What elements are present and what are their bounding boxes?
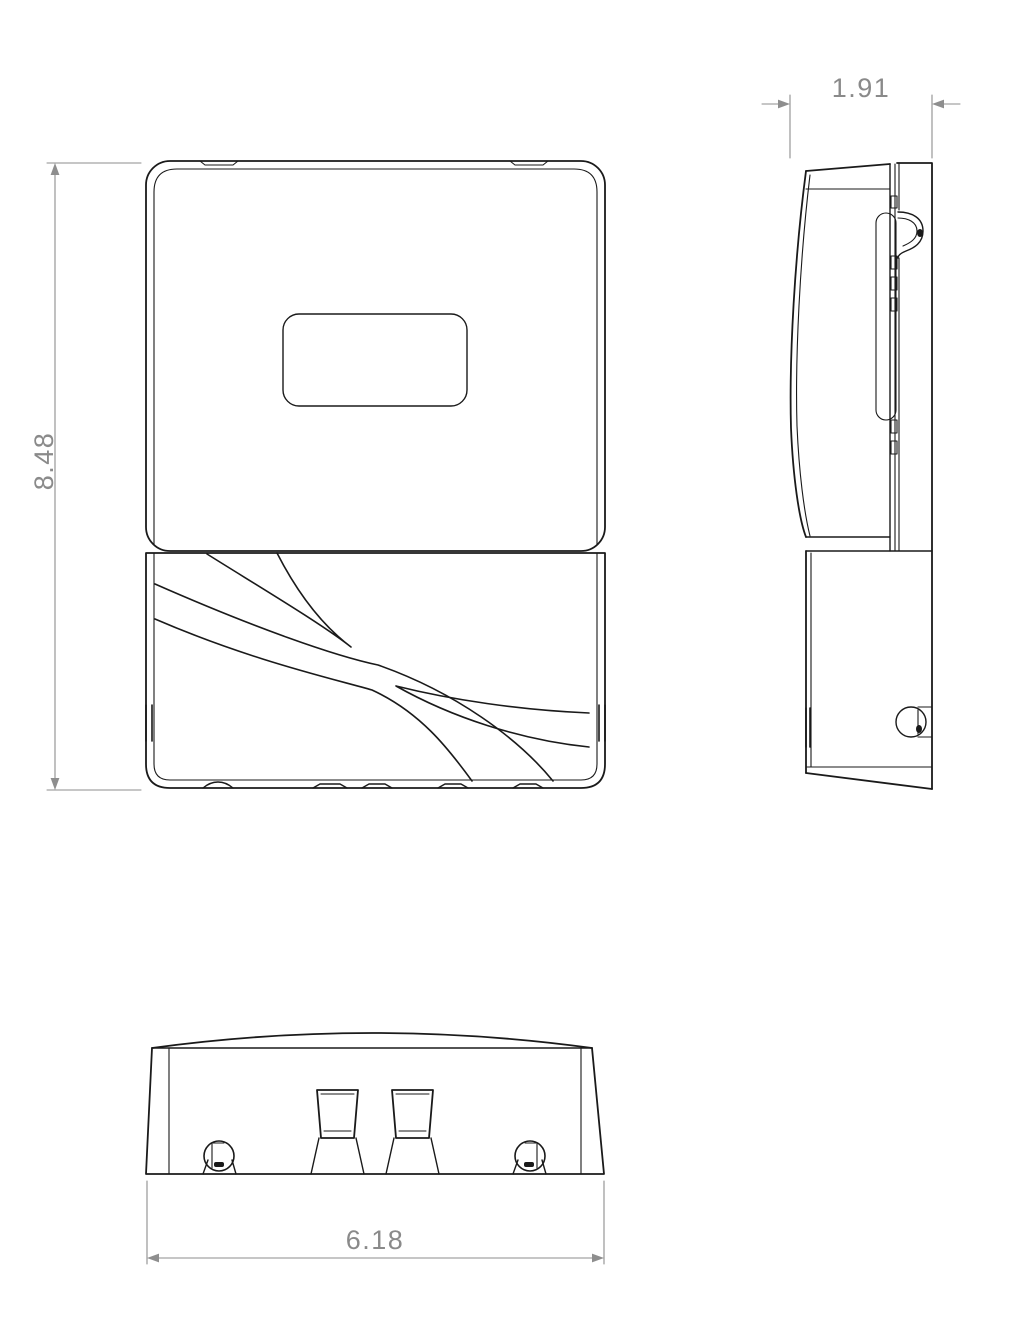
hook-screw-dot xyxy=(917,229,923,237)
bottom-view xyxy=(146,1033,604,1174)
width-arrow-right xyxy=(592,1254,604,1263)
front-label-window xyxy=(283,314,467,406)
side-latch-slot xyxy=(806,708,810,747)
width-arrow-left xyxy=(147,1254,159,1263)
front-cover-outline xyxy=(146,161,605,551)
side-keyhole-boss xyxy=(896,707,932,737)
side-backplate xyxy=(897,163,932,789)
height-arrow-bottom xyxy=(51,778,60,790)
width-dimension-value: 6.18 xyxy=(346,1225,405,1255)
bottom-round-boss-right xyxy=(513,1141,546,1174)
bottom-square-knockout-left xyxy=(311,1090,364,1174)
side-cover-top-edge xyxy=(806,164,890,171)
depth-dimension: 1.91 xyxy=(762,73,960,158)
bottom-outline xyxy=(146,1048,604,1174)
swoosh-leaf-lower-right xyxy=(396,686,589,747)
height-dimension-value: 8.48 xyxy=(29,432,59,491)
front-cover-inner-edge xyxy=(154,169,597,545)
height-dimension: 8.48 xyxy=(29,163,141,790)
technical-drawing: 8.48 1.91 6.18 xyxy=(0,0,1034,1324)
front-body-inner-edge xyxy=(154,553,597,780)
front-body-outline xyxy=(146,553,605,788)
front-view xyxy=(146,161,605,788)
front-side-slots xyxy=(146,705,605,741)
depth-arrow-right xyxy=(932,100,944,109)
side-view xyxy=(791,163,932,789)
keyhole-screw-dot xyxy=(916,725,922,733)
height-arrow-top xyxy=(51,163,60,175)
width-dimension: 6.18 xyxy=(147,1181,604,1264)
bottom-round-boss-left xyxy=(203,1141,236,1174)
bottom-inner-edges xyxy=(169,1048,581,1174)
bottom-dome-curve xyxy=(152,1033,592,1048)
depth-extension-lines xyxy=(790,95,932,158)
depth-dimension-value: 1.91 xyxy=(832,73,891,103)
side-label-slot xyxy=(876,213,896,420)
bottom-square-knockout-right xyxy=(386,1090,439,1174)
side-body-bottom-edge xyxy=(806,773,932,789)
drawing-canvas: 8.48 1.91 6.18 xyxy=(0,0,1034,1324)
side-cover-front-curve xyxy=(791,171,806,537)
swoosh-leaf-upper-left xyxy=(207,553,351,647)
depth-arrow-left xyxy=(778,100,790,109)
swoosh-curve-long xyxy=(155,584,553,781)
side-mounting-hook xyxy=(898,212,923,258)
front-swoosh-pattern xyxy=(155,553,589,781)
height-extension-lines xyxy=(47,163,141,790)
